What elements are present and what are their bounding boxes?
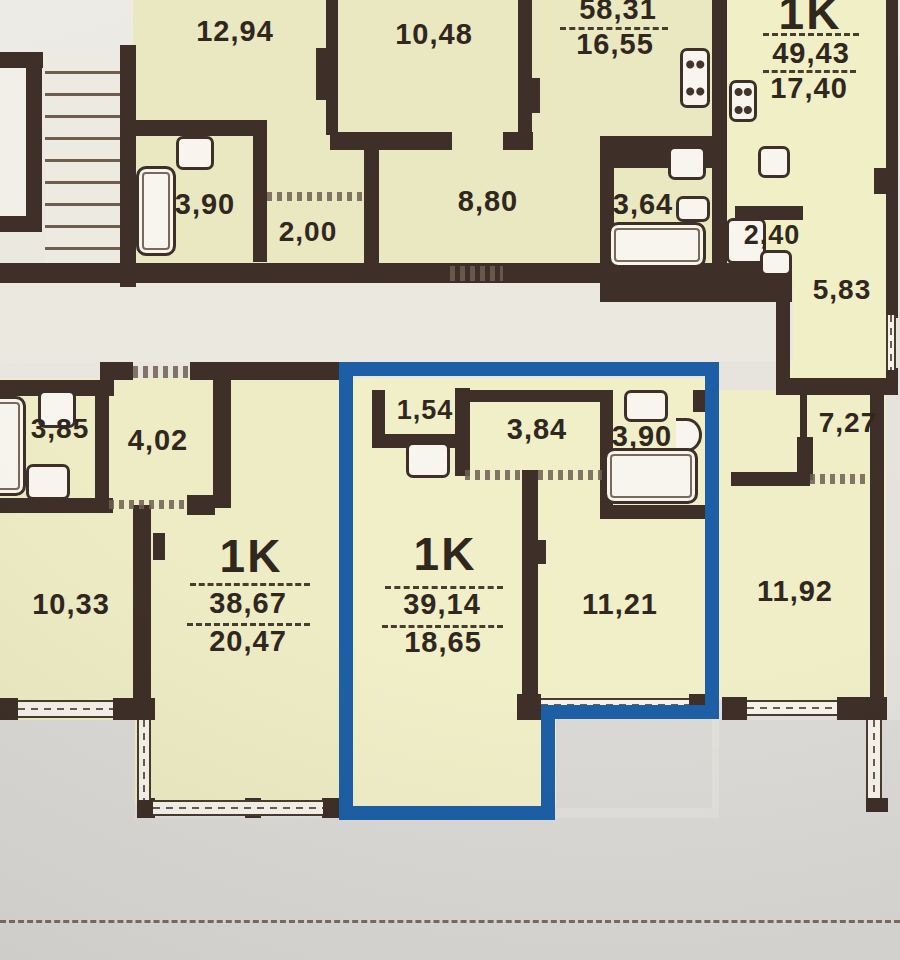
wall (712, 0, 727, 265)
wall (100, 362, 114, 396)
apartment-total-label: 58,31 (579, 0, 657, 26)
room-area-label: 3,85 (31, 413, 90, 445)
door-threshold (810, 474, 868, 484)
wall (465, 390, 602, 402)
wall (522, 470, 538, 708)
wall (326, 0, 338, 135)
wall (886, 268, 898, 318)
window (137, 720, 151, 800)
room-area-label: 3,84 (507, 413, 567, 446)
apartment-total-label: 49,43 (772, 37, 850, 70)
wall (316, 48, 326, 100)
wall (600, 505, 710, 519)
wall (364, 132, 379, 263)
floorplan-photo: 12,94 10,48 58,31 16,55 1K 49,43 17,40 3… (0, 0, 900, 960)
apartment-living-label: 17,40 (770, 72, 848, 105)
wall (95, 394, 109, 502)
staircase (45, 52, 120, 263)
room-area-label: 4,02 (128, 424, 188, 457)
room-area-label: 3,90 (612, 420, 672, 453)
room-area-label: 2,40 (744, 220, 801, 251)
window (153, 800, 323, 816)
wall (776, 300, 790, 380)
room-area-label: 3,90 (175, 188, 235, 221)
wall (213, 380, 231, 508)
window (18, 700, 113, 718)
apartment-type-label: 1K (414, 527, 477, 581)
stove-icon (680, 48, 710, 108)
wall (517, 694, 541, 720)
wall (870, 395, 884, 700)
door-threshold (109, 500, 187, 509)
sink-icon (758, 146, 790, 178)
wall (776, 378, 898, 395)
room-area-label: 3,64 (613, 188, 673, 221)
wall (153, 533, 165, 560)
wall (722, 697, 747, 720)
door-threshold (465, 470, 522, 480)
room-area-label: 11,92 (757, 575, 833, 608)
door-threshold (133, 366, 190, 378)
toilet-icon (26, 464, 70, 500)
wall (133, 505, 151, 705)
room-area-label: 11,21 (582, 588, 658, 621)
room-area-label: 5,83 (813, 274, 872, 306)
toilet-icon (668, 146, 706, 180)
window (747, 700, 837, 716)
wall (187, 495, 215, 515)
wall (536, 540, 546, 564)
page-edge-dashed-line (0, 920, 900, 923)
wall (0, 263, 600, 283)
sink-icon (760, 250, 792, 276)
wall (800, 390, 807, 437)
wall (253, 120, 267, 262)
bathtub-icon (604, 448, 698, 504)
wall (731, 472, 810, 486)
wall (866, 798, 888, 812)
bathtub-icon (608, 222, 706, 268)
wall (0, 498, 113, 513)
wall (190, 362, 346, 380)
window (886, 315, 896, 370)
elevator-shaft (0, 68, 26, 216)
apartment-living-label: 20,47 (209, 625, 287, 658)
room-area-label: 2,00 (279, 216, 338, 248)
sink-icon (406, 442, 450, 478)
wall (886, 0, 898, 270)
room-area-label: 1,54 (397, 395, 454, 426)
wall (886, 368, 898, 395)
room-area-label: 16,55 (576, 28, 654, 61)
room-area-label: 12,94 (196, 15, 274, 48)
apartment-type-label: 1K (220, 529, 283, 583)
room-area-label: 10,33 (32, 588, 110, 621)
sink-icon (676, 196, 710, 222)
room-area-label: 8,80 (458, 185, 518, 218)
wall (113, 698, 155, 720)
apartment-total-label: 39,14 (403, 588, 481, 621)
door-threshold (538, 470, 602, 480)
wall (528, 78, 540, 113)
wall (0, 216, 40, 232)
outside-notch (556, 714, 712, 808)
door-threshold (450, 266, 503, 281)
wall (518, 0, 532, 135)
toilet-icon (624, 390, 668, 422)
door-threshold (267, 192, 364, 201)
room-area-label: 7,27 (819, 407, 878, 439)
stove-icon (729, 80, 757, 122)
wall (26, 52, 42, 232)
apartment-living-label: 18,65 (404, 626, 482, 659)
apartment-total-label: 38,67 (209, 587, 287, 620)
wall (837, 697, 887, 720)
outside-bottom (0, 818, 900, 960)
toilet-icon (176, 136, 214, 170)
bathtub-icon (0, 396, 26, 496)
window (866, 720, 882, 798)
room-area-label: 10,48 (395, 18, 473, 51)
wall (133, 120, 255, 136)
wall (330, 132, 452, 150)
wall (120, 45, 136, 287)
bathtub-icon (136, 166, 176, 256)
wall (322, 798, 340, 818)
wall (0, 698, 18, 720)
wall (874, 168, 886, 194)
